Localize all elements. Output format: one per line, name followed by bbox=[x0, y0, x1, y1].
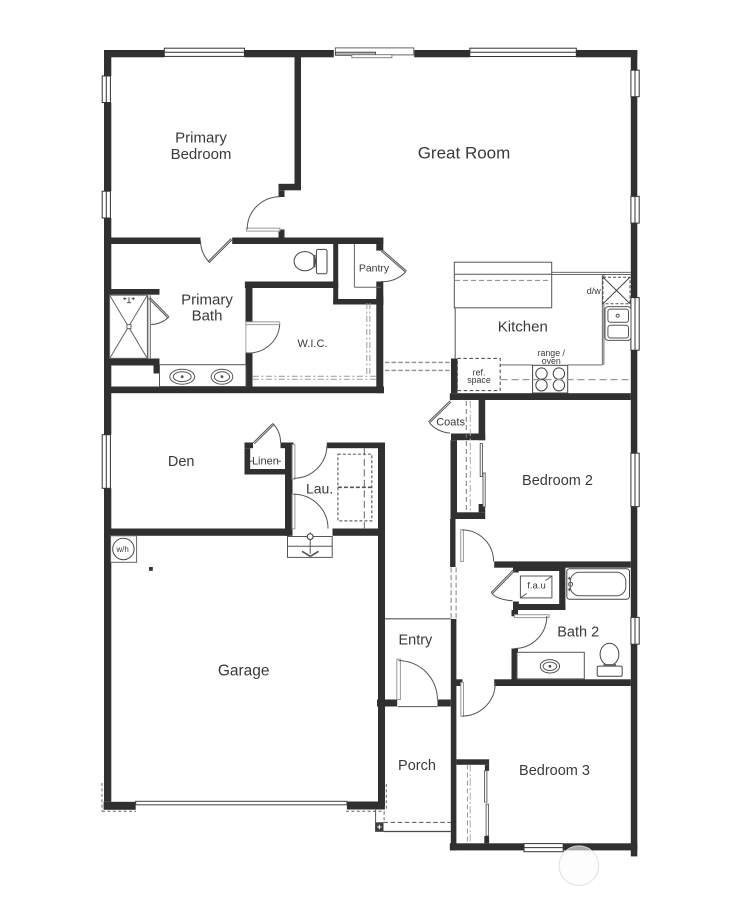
svg-text:Primary: Primary bbox=[175, 130, 227, 147]
svg-text:Bath 2: Bath 2 bbox=[557, 624, 599, 640]
svg-text:Garage: Garage bbox=[218, 663, 270, 680]
svg-text:space: space bbox=[467, 375, 491, 385]
svg-text:w/h: w/h bbox=[115, 545, 128, 554]
svg-text:f.a.u: f.a.u bbox=[527, 581, 546, 592]
svg-text:Primary: Primary bbox=[181, 291, 233, 308]
svg-text:Den: Den bbox=[168, 454, 195, 470]
svg-text:Great Room: Great Room bbox=[418, 143, 511, 162]
svg-text:Linen: Linen bbox=[252, 456, 279, 468]
svg-text:Pantry: Pantry bbox=[359, 263, 390, 275]
svg-text:Lau.: Lau. bbox=[306, 481, 333, 497]
svg-text:W.I.C.: W.I.C. bbox=[298, 338, 328, 350]
svg-text:Porch: Porch bbox=[398, 758, 436, 774]
svg-text:Bedroom: Bedroom bbox=[171, 146, 232, 163]
svg-text:Bath: Bath bbox=[192, 307, 223, 324]
svg-text:Bedroom 2: Bedroom 2 bbox=[522, 473, 593, 489]
svg-text:oven: oven bbox=[542, 356, 561, 366]
svg-text:Bedroom 3: Bedroom 3 bbox=[519, 763, 590, 779]
svg-text:Entry: Entry bbox=[398, 633, 433, 649]
svg-text:d/w: d/w bbox=[587, 286, 602, 296]
svg-text:Kitchen: Kitchen bbox=[498, 319, 548, 336]
svg-text:Coats: Coats bbox=[436, 417, 465, 429]
